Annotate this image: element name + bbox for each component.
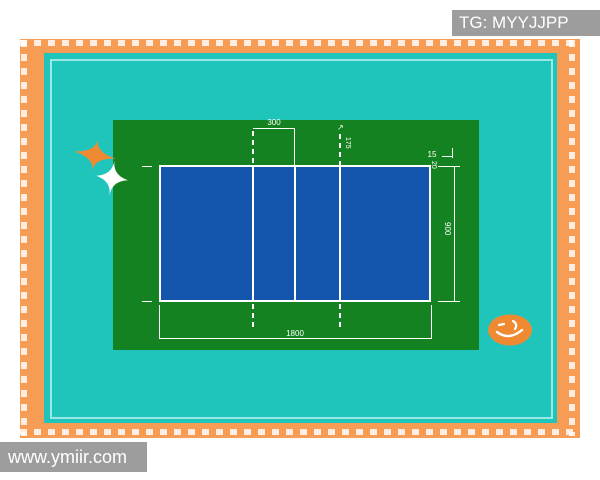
dim-label-service-mark-offset: 20: [429, 161, 437, 169]
corner-tick-top-left: [142, 166, 152, 167]
frame-perforation-top: [20, 40, 580, 46]
dim-line-bottom: [159, 338, 432, 339]
attack-line-extension-top-right: [339, 134, 341, 165]
dim-ext-right-top: [438, 166, 460, 167]
dim-arrow-icon: ↗: [337, 124, 344, 132]
frame-perforation-left: [21, 40, 27, 436]
white-sparkle-icon: [94, 158, 131, 198]
sparkle-icon: [70, 133, 134, 203]
dim-tick-centerline: [294, 128, 295, 166]
attack-line-extension-bottom-left: [252, 304, 254, 330]
orange-sparkle-icon: [72, 136, 119, 175]
dim-ext-right-bottom: [438, 301, 460, 302]
dim-label-court-length: 1800: [265, 329, 325, 338]
dim-label-court-width: 900: [443, 222, 451, 235]
attack-line-left: [252, 167, 254, 300]
attack-line-right: [339, 167, 341, 300]
dim-label-attack-extension: 175: [343, 137, 351, 149]
watermark-website: www.ymiir.com: [0, 442, 147, 472]
frame-perforation-bottom: [20, 429, 580, 435]
attack-line-extension-bottom-right: [339, 304, 341, 330]
diagram-canvas: 300 ↗ 175 15 20 900 1800 TG: MYYJJPP www…: [0, 0, 600, 480]
corner-tick-bottom-left: [142, 301, 152, 302]
watermark-telegram: TG: MYYJJPP: [452, 10, 600, 36]
dim-ext-bottom-left: [159, 305, 160, 338]
dim-line-right: [454, 167, 455, 301]
dim-tick-corner-h: [442, 156, 452, 157]
dim-tick-corner-v: [452, 148, 453, 158]
center-line: [294, 167, 296, 300]
frame-perforation-right: [569, 40, 575, 436]
dim-line-top: [253, 128, 295, 129]
dim-label-attack-to-center: 300: [255, 118, 293, 127]
dim-ext-bottom-right: [431, 305, 432, 338]
dim-label-service-mark-length: 15: [424, 150, 440, 159]
attack-line-extension-top-left: [252, 131, 254, 165]
smiley-icon: [487, 313, 533, 347]
